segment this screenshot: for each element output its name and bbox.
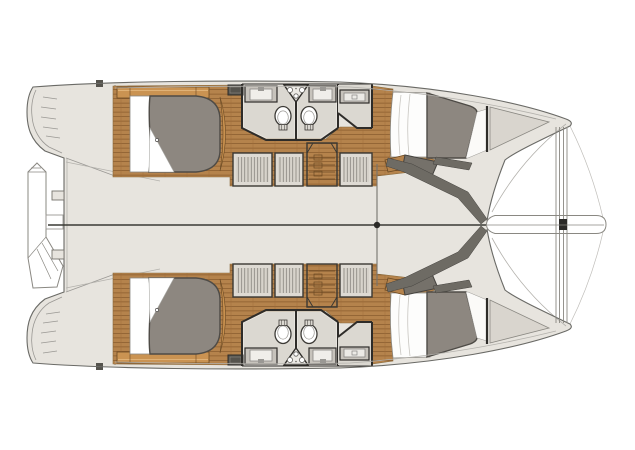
starboard-hull	[27, 225, 603, 370]
bowsprit	[487, 216, 607, 234]
floorplan-svg	[0, 0, 635, 450]
crossbeam-fitting	[559, 219, 567, 230]
stern-fitting	[52, 250, 64, 259]
mast-step	[374, 222, 380, 228]
stern-fitting	[52, 191, 64, 200]
port-hull	[27, 80, 603, 225]
stern-locker	[46, 215, 63, 229]
catamaran-floorplan	[0, 0, 635, 450]
